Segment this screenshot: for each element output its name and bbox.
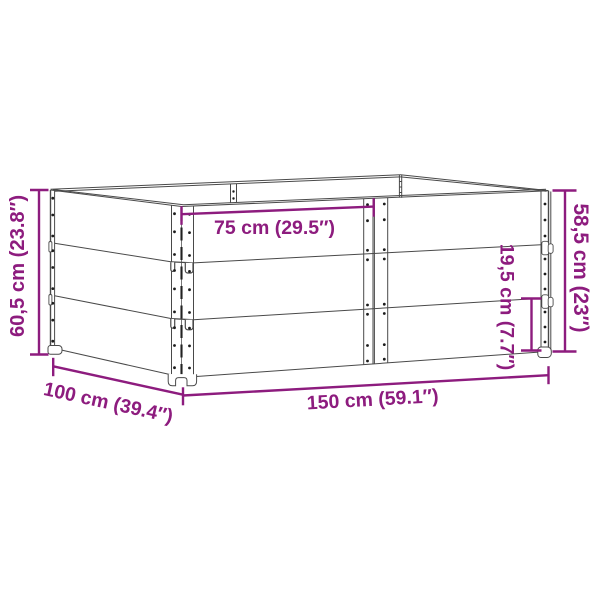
svg-text:19,5 cm (7.7″): 19,5 cm (7.7″) xyxy=(496,244,518,370)
svg-text:75 cm (29.5″): 75 cm (29.5″) xyxy=(214,217,335,239)
svg-text:58,5 cm (23″): 58,5 cm (23″) xyxy=(569,203,592,332)
svg-text:60,5 cm (23.8″): 60,5 cm (23.8″) xyxy=(7,195,29,337)
